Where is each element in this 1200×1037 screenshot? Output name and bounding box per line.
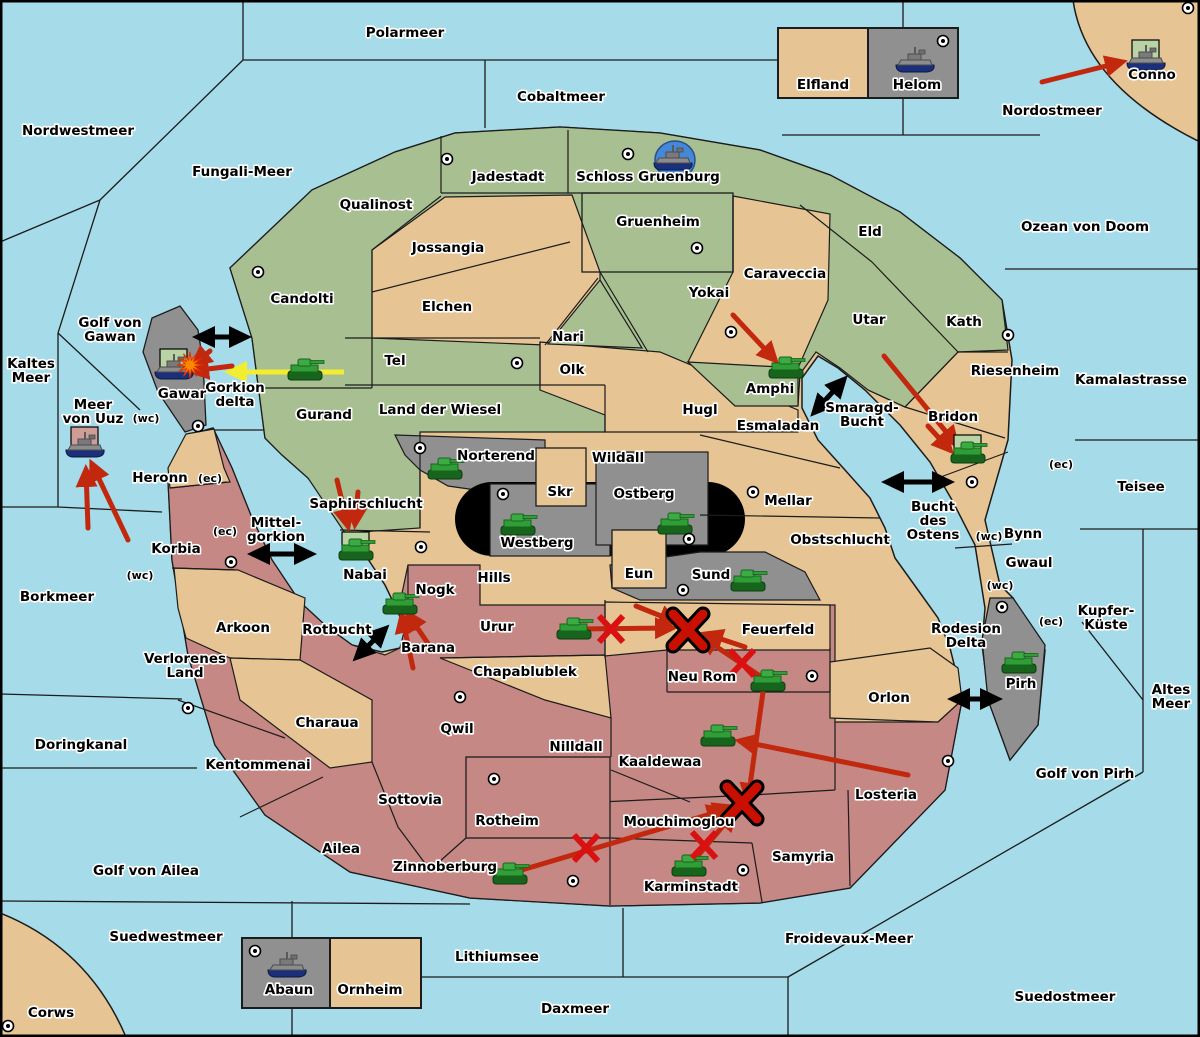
supply-center-dot xyxy=(738,865,749,876)
sea-label-mittel-gorkion: Mittel-gorkion xyxy=(247,515,305,545)
territory-label-jossangia: Jossangia xyxy=(411,240,485,256)
supply-center-dot xyxy=(568,876,579,887)
territory-label-elchen: Elchen xyxy=(422,299,472,315)
territory-label-sottovia: Sottovia xyxy=(378,792,442,808)
sea-label-fungali-meer: Fungali-Meer xyxy=(192,164,292,180)
supply-center-dot xyxy=(748,487,759,498)
supply-center-dot xyxy=(1003,330,1014,341)
supply-center-dot xyxy=(997,602,1008,613)
territory-label-sund: Sund xyxy=(692,567,731,583)
territory-label-rotheim: Rotheim xyxy=(475,813,539,829)
territory-label-kentommenai: Kentommenai xyxy=(205,757,310,773)
territory-label-schloss-gruenburg: Schloss Gruenburg xyxy=(576,169,720,185)
territory-label-land-der-wiesel: Land der Wiesel xyxy=(379,402,501,418)
territory-label-eun: Eun xyxy=(625,566,653,582)
territory-label-barana: Barana xyxy=(401,640,455,656)
supply-center-dot xyxy=(498,489,509,500)
supply-center-dot xyxy=(692,243,703,254)
territory-label-pirh: Pirh xyxy=(1006,676,1037,692)
territory-label-korbia: Korbia xyxy=(151,541,201,557)
sea-label-kamalastrasse: Kamalastrasse xyxy=(1075,372,1187,388)
territory-label-gruenheim: Gruenheim xyxy=(616,214,700,230)
supply-center-dot xyxy=(226,557,237,568)
sea-label-kupfer-k-ste: Kupfer-Küste xyxy=(1078,603,1135,633)
territory-label-gwaul: Gwaul xyxy=(1006,555,1053,571)
coast-mark-label: (ec) xyxy=(213,525,237,538)
coast-mark-label: (ec) xyxy=(198,472,222,485)
sea-label-kaltes-meer: KaltesMeer xyxy=(7,356,55,386)
sea-label-doringkanal: Doringkanal xyxy=(35,737,127,753)
territory-label-obstschlucht: Obstschlucht xyxy=(790,532,890,548)
supply-center-dot xyxy=(1183,3,1194,14)
territory-label-arkoon: Arkoon xyxy=(216,620,270,636)
territory-label-jadestadt: Jadestadt xyxy=(471,169,545,185)
sea-label-polarmeer: Polarmeer xyxy=(366,25,445,41)
territory-label-caraveccia: Caraveccia xyxy=(744,266,826,282)
supply-center-dot xyxy=(183,703,194,714)
supply-center-dot xyxy=(678,585,689,596)
territory-label-conno: Conno xyxy=(1128,67,1176,83)
territory-label-esmaladan: Esmaladan xyxy=(737,418,820,434)
territory-label-gurand: Gurand xyxy=(296,407,352,423)
supply-center-dot xyxy=(807,671,818,682)
sea-label-daxmeer: Daxmeer xyxy=(541,1001,609,1017)
territory-label-riesenheim: Riesenheim xyxy=(971,363,1059,379)
territory-label-qwil: Qwil xyxy=(440,721,473,737)
supply-center-dot xyxy=(938,36,949,47)
territory-label-norterend: Norterend xyxy=(457,448,535,464)
territory-label-karminstadt: Karminstadt xyxy=(644,879,739,895)
supply-center-dot xyxy=(253,267,264,278)
territory-label-zinnoberburg: Zinnoberburg xyxy=(393,859,497,875)
territory-label-amphi: Amphi xyxy=(746,381,794,397)
supply-center-dot xyxy=(442,154,453,165)
sea-label-nordostmeer: Nordostmeer xyxy=(1002,103,1102,119)
coast-mark-label: (ec) xyxy=(1049,458,1073,471)
territory-label-kaaldewaa: Kaaldewaa xyxy=(619,754,702,770)
coast-mark-label: (wc) xyxy=(976,530,1003,543)
territory-label-helom: Helom xyxy=(893,77,941,93)
territory-label-skr: Skr xyxy=(547,484,573,500)
sea-label-suedwestmeer: Suedwestmeer xyxy=(109,929,223,945)
supply-center-dot xyxy=(489,774,500,785)
territory-label-gawar: Gawar xyxy=(158,386,207,402)
territory-label-nabai: Nabai xyxy=(343,567,387,583)
supply-center-dot xyxy=(455,692,466,703)
sea-label-cobaltmeer: Cobaltmeer xyxy=(517,89,605,105)
territory-label-mellar: Mellar xyxy=(764,493,812,509)
region-orlon xyxy=(830,648,962,722)
coast-mark-label: (ec) xyxy=(1039,615,1063,628)
coast-mark-label: (wc) xyxy=(987,579,1014,592)
map-svg: PolarmeerNordwestmeerCobaltmeerNordostme… xyxy=(0,0,1200,1037)
territory-label-ailea: Ailea xyxy=(322,841,360,857)
territory-label-yokai: Yokai xyxy=(688,285,730,301)
territory-label-mouchimoglou: Mouchimoglou xyxy=(623,814,734,830)
territory-label-saphirschlucht: Saphirschlucht xyxy=(309,496,423,512)
territory-label-eld: Eld xyxy=(858,224,882,240)
territory-label-charaua: Charaua xyxy=(295,715,358,731)
attack-arrow xyxy=(578,628,672,629)
supply-center-dot xyxy=(250,946,261,957)
territory-label-bynn: Bynn xyxy=(1004,526,1042,542)
territory-label-qualinost: Qualinost xyxy=(340,197,413,213)
sea-label-golf-von-gawan: Golf vonGawan xyxy=(78,315,141,345)
sea-label-rotbucht: Rotbucht xyxy=(302,622,372,638)
territory-label-nogk: Nogk xyxy=(415,582,455,598)
sea-label-teisee: Teisee xyxy=(1117,479,1165,495)
territory-label-ostberg: Ostberg xyxy=(613,486,674,502)
territory-label-olk: Olk xyxy=(559,362,585,378)
sea-label-nordwestmeer: Nordwestmeer xyxy=(22,123,134,139)
sea-label-lithiumsee: Lithiumsee xyxy=(455,949,539,965)
supply-center-dot xyxy=(512,358,523,369)
territory-label-kath: Kath xyxy=(946,314,982,330)
supply-center-dot xyxy=(943,756,954,767)
territory-label-ornheim: Ornheim xyxy=(337,982,402,998)
territory-label-heronn: Heronn xyxy=(132,470,188,486)
supply-center-dot xyxy=(193,421,204,432)
territory-label-nilldall: Nilldall xyxy=(549,739,602,755)
supply-center-dot xyxy=(967,477,978,488)
territory-label-westberg: Westberg xyxy=(500,535,573,551)
attack-arrow xyxy=(86,470,88,528)
supply-center-dot xyxy=(623,149,634,160)
supply-center-dot xyxy=(415,443,426,454)
territory-label-elfland: Elfland xyxy=(797,77,849,93)
territory-label-hugl: Hugl xyxy=(682,402,717,418)
sea-label-ozean-von-doom: Ozean von Doom xyxy=(1021,219,1149,235)
sea-label-froidevaux-meer: Froidevaux-Meer xyxy=(785,931,913,947)
territory-label-urur: Urur xyxy=(480,619,514,635)
territory-label-tel: Tel xyxy=(384,353,405,369)
sea-label-altes-meer: AltesMeer xyxy=(1152,682,1191,712)
territory-label-bridon: Bridon xyxy=(928,409,978,425)
territory-label-chapablublek: Chapablublek xyxy=(473,664,578,680)
territory-label-nari: Nari xyxy=(552,329,584,345)
territory-label-feuerfeld: Feuerfeld xyxy=(742,622,815,638)
coast-mark-label: (wc) xyxy=(127,569,154,582)
war-map: PolarmeerNordwestmeerCobaltmeerNordostme… xyxy=(0,0,1200,1037)
sea-label-golf-von-ailea: Golf von Ailea xyxy=(93,863,199,879)
sea-label-golf-von-pirh: Golf von Pirh xyxy=(1036,766,1135,782)
territory-label-orlon: Orlon xyxy=(868,690,910,706)
sea-label-borkmeer: Borkmeer xyxy=(20,589,95,605)
territory-label-samyria: Samyria xyxy=(772,849,834,865)
territory-label-losteria: Losteria xyxy=(855,787,917,803)
supply-center-dot xyxy=(3,1021,14,1032)
territory-label-utar: Utar xyxy=(852,312,886,328)
territory-label-abaun: Abaun xyxy=(265,982,313,998)
territory-label-hills: Hills xyxy=(477,570,510,586)
supply-center-dot xyxy=(726,327,737,338)
territory-label-candolti: Candolti xyxy=(270,291,333,307)
supply-center-dot xyxy=(684,534,695,545)
sea-label-corws: Corws xyxy=(28,1005,74,1021)
sea-label-suedostmeer: Suedostmeer xyxy=(1015,989,1116,1005)
supply-center-dot xyxy=(416,542,427,553)
territory-label-wildall: Wildall xyxy=(592,450,644,466)
territory-label-neu-rom: Neu Rom xyxy=(668,669,737,685)
coast-mark-label: (wc) xyxy=(133,412,160,425)
